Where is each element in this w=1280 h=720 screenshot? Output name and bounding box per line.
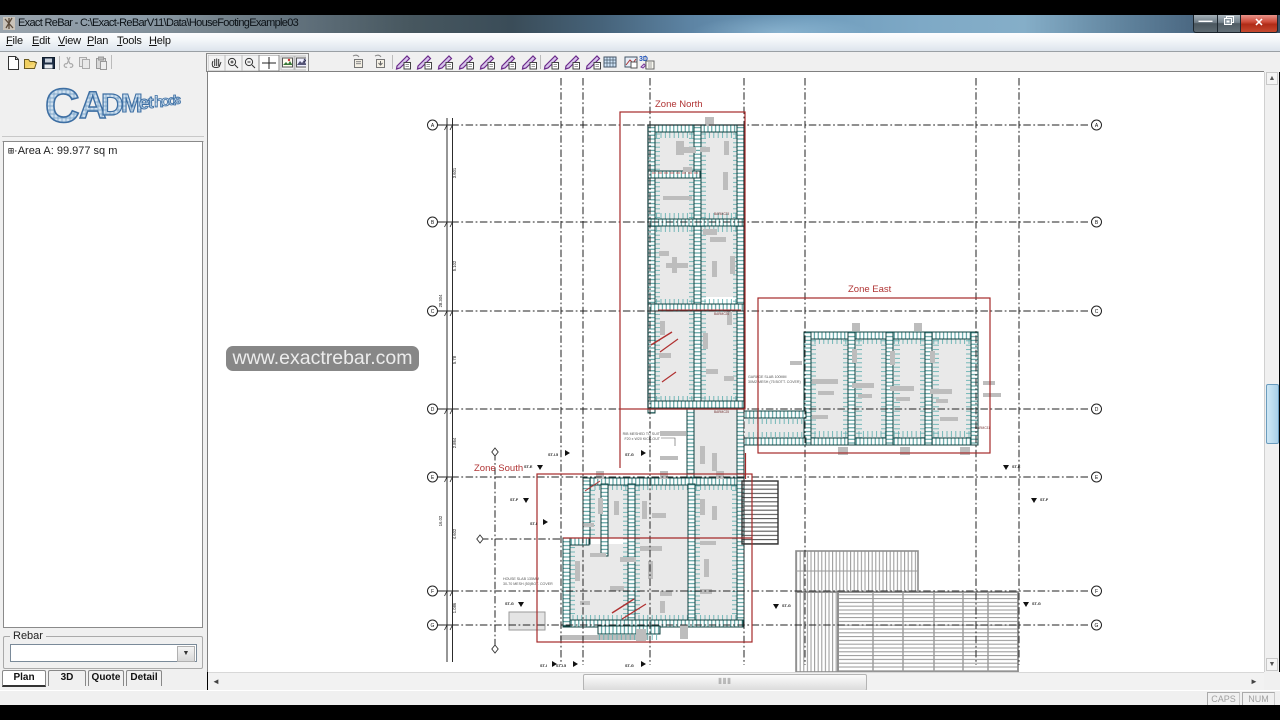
svg-text:ST-G: ST-G: [625, 664, 634, 668]
svg-text:BARMC31: BARMC31: [975, 426, 990, 430]
svg-text:5.102: 5.102: [452, 260, 457, 271]
svg-text:s: s: [174, 92, 181, 107]
svg-text:ST-I: ST-I: [530, 522, 537, 526]
svg-text:5.78: 5.78: [452, 355, 457, 364]
svg-text:F: F: [431, 589, 434, 595]
svg-text:Zone North: Zone North: [655, 99, 703, 110]
svg-text:C: C: [1095, 309, 1099, 315]
svg-text:ST-I: ST-I: [540, 664, 547, 668]
svg-text:F20 x W20 KICK-OUT: F20 x W20 KICK-OUT: [624, 437, 660, 441]
svg-text:ST-E: ST-E: [524, 465, 533, 469]
svg-text:30M2 MESH (75 BOTT. COVER): 30M2 MESH (75 BOTT. COVER): [748, 380, 801, 384]
svg-text:30-70 MESH (50)BOT. COVER: 30-70 MESH (50)BOT. COVER: [503, 582, 553, 586]
svg-text:16.02: 16.02: [438, 515, 443, 526]
svg-text:ST-I.5: ST-I.5: [548, 453, 558, 457]
svg-text:D: D: [1095, 407, 1099, 413]
svg-text:ST-G: ST-G: [625, 453, 634, 457]
svg-text:Zone South: Zone South: [474, 463, 523, 474]
svg-text:3.601: 3.601: [452, 167, 457, 178]
svg-text:BARMC25: BARMC25: [714, 410, 729, 414]
svg-text:4.602: 4.602: [452, 528, 457, 539]
svg-text:ST-F: ST-F: [510, 498, 519, 502]
svg-text:RIB MESHED TO SUIT: RIB MESHED TO SUIT: [623, 432, 661, 436]
svg-text:HOUSE SLAB 135MM: HOUSE SLAB 135MM: [503, 577, 539, 581]
svg-text:G: G: [431, 623, 435, 629]
svg-text:1.086: 1.086: [452, 602, 457, 613]
svg-text:C: C: [431, 309, 435, 315]
svg-text:Zone East: Zone East: [848, 284, 892, 295]
svg-text:GARAGE SLAB 100MM: GARAGE SLAB 100MM: [748, 375, 787, 379]
svg-text:G: G: [1095, 623, 1099, 629]
svg-text:ST-G: ST-G: [782, 604, 791, 608]
svg-text:C: C: [45, 80, 80, 133]
svg-text:ST-F: ST-F: [1040, 498, 1049, 502]
svg-text:D: D: [431, 407, 435, 413]
svg-text:ST-G: ST-G: [1032, 602, 1041, 606]
svg-text:BARMC24: BARMC24: [714, 312, 729, 316]
svg-text:2.864: 2.864: [452, 437, 457, 448]
svg-text:BARMC23: BARMC23: [714, 212, 729, 216]
svg-text:F: F: [1095, 589, 1098, 595]
svg-text:28.304: 28.304: [438, 294, 443, 307]
svg-text:ST-I.5: ST-I.5: [556, 664, 566, 668]
svg-text:ST-G: ST-G: [505, 602, 514, 606]
svg-text:ST-E: ST-E: [1012, 465, 1021, 469]
